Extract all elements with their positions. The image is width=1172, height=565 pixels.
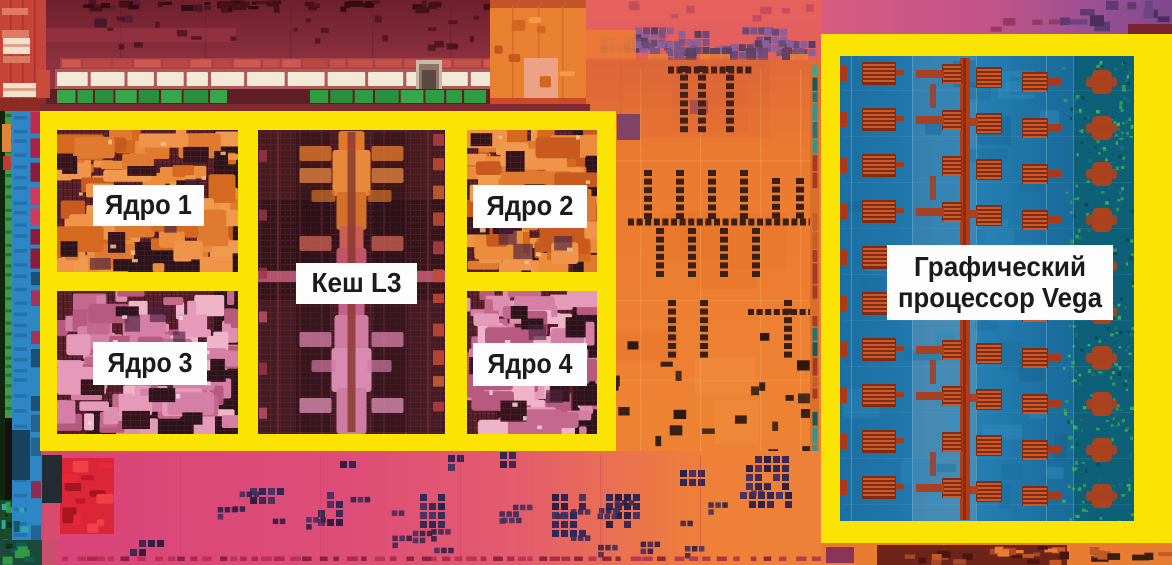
svg-text:Ядро 3: Ядро 3	[108, 347, 193, 378]
svg-text:Кеш L3: Кеш L3	[312, 267, 402, 298]
svg-text:Ядро 4: Ядро 4	[488, 348, 573, 379]
svg-text:процессор Vega: процессор Vega	[898, 282, 1102, 313]
svg-text:Ядро 1: Ядро 1	[105, 189, 192, 220]
svg-text:Графический: Графический	[914, 251, 1086, 282]
svg-text:Ядро 2: Ядро 2	[487, 190, 574, 221]
